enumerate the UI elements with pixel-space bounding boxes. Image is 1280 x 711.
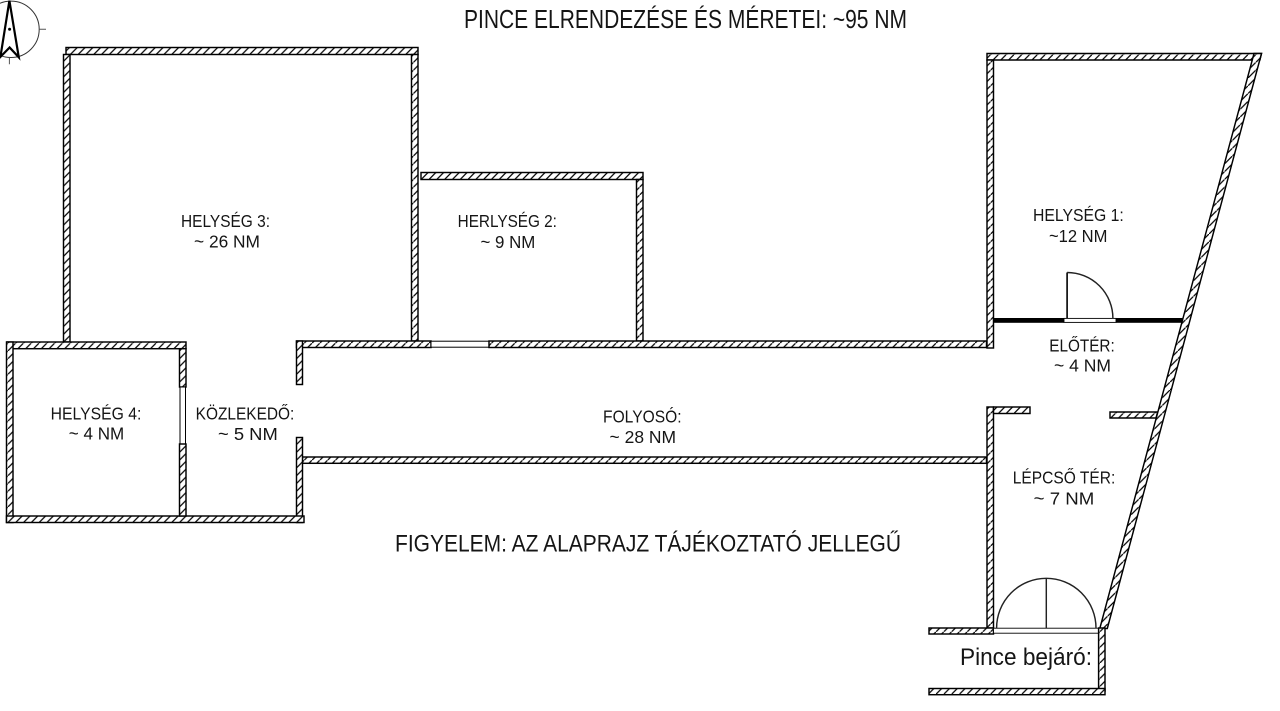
svg-text:~ 5 NM: ~ 5 NM [218,424,278,444]
svg-text:~ 28 NM: ~ 28 NM [610,427,677,447]
svg-text:~ 7 NM: ~ 7 NM [1034,488,1095,508]
svg-text:~ 26 NM: ~ 26 NM [194,232,260,252]
svg-text:HELYSÉG 3:: HELYSÉG 3: [181,211,270,231]
svg-text:LÉPCSŐ TÉR:: LÉPCSŐ TÉR: [1013,467,1116,488]
svg-text:HELYSÉG 4:: HELYSÉG 4: [51,404,142,424]
svg-text:KÖZLEKEDŐ:: KÖZLEKEDŐ: [196,402,295,423]
svg-text:~ 4 NM: ~ 4 NM [1054,356,1111,376]
svg-text:HERLYSÉG 2:: HERLYSÉG 2: [458,211,557,231]
svg-text:~12 NM: ~12 NM [1049,226,1108,246]
svg-text:ELŐTÉR:: ELŐTÉR: [1049,334,1115,355]
svg-text:~ 9 NM: ~ 9 NM [481,232,536,252]
svg-text:FIGYELEM: AZ ALAPRAJZ TÁJÉKOZT: FIGYELEM: AZ ALAPRAJZ TÁJÉKOZTATÓ JELLEG… [395,531,901,558]
svg-text:~ 4 NM: ~ 4 NM [69,424,124,444]
svg-text:HELYSÉG 1:: HELYSÉG 1: [1033,205,1124,225]
svg-text:Pince bejáró:: Pince bejáró: [960,644,1092,671]
svg-text:FOLYOSÓ:: FOLYOSÓ: [603,405,682,426]
svg-text:PINCE ELRENDEZÉSE ÉS MÉRETEI:: PINCE ELRENDEZÉSE ÉS MÉRETEI: ~95 NM [464,4,907,34]
